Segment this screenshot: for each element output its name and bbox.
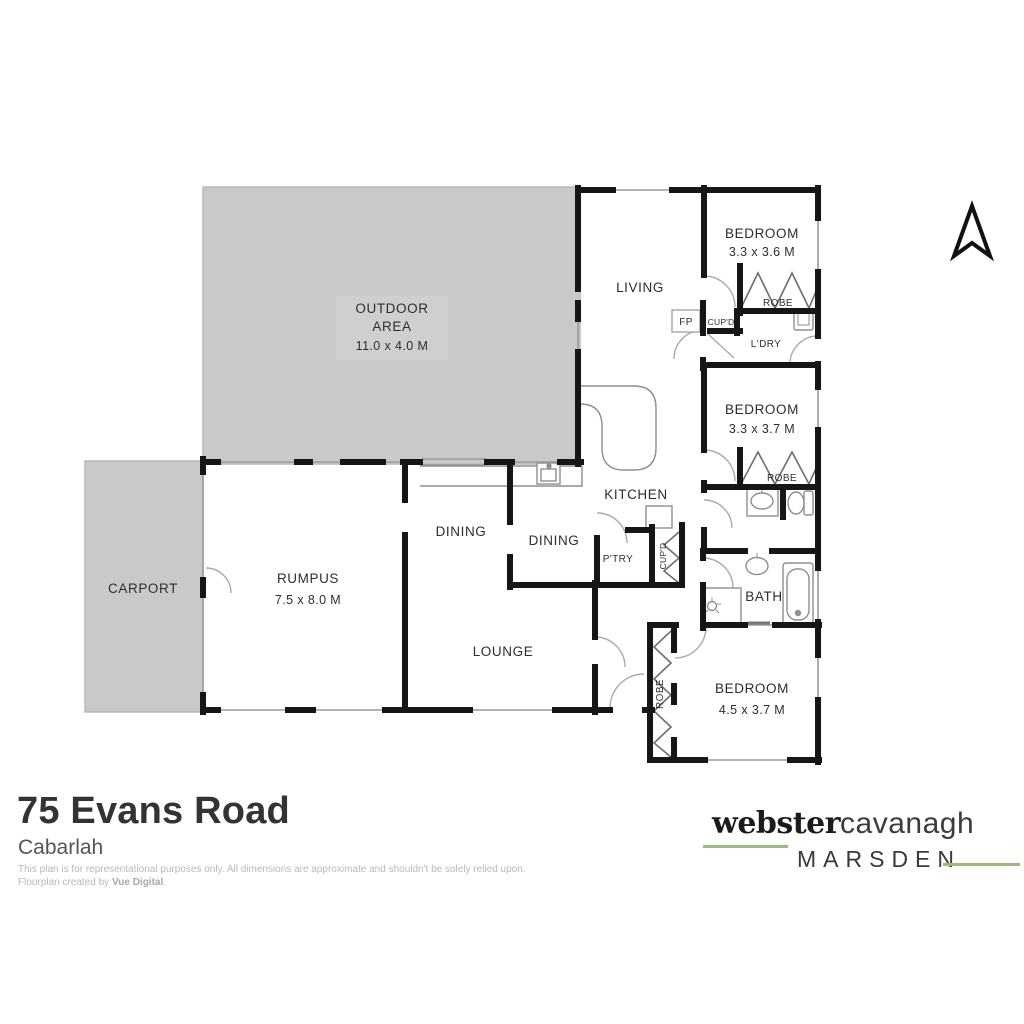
disclaimer-text: This plan is for representational purpos… (18, 863, 526, 889)
bathtub-icon (783, 563, 813, 626)
page-title: 75 Evans Road (17, 790, 290, 833)
label-pantry: P'TRY (603, 554, 633, 565)
brand-name-secondary: cavanagh (840, 807, 974, 840)
label-robe-2: ROBE (767, 473, 797, 484)
shower-icon (703, 588, 741, 627)
label-fireplace: FP (679, 317, 693, 328)
label-laundry: L'DRY (751, 339, 781, 350)
disclaimer-line1: This plan is for representational purpos… (18, 864, 526, 875)
dims-bedroom-3: 4.5 x 3.7 M (719, 703, 785, 717)
label-dining-1: DINING (436, 524, 487, 539)
label-robe-1: ROBE (763, 298, 793, 309)
bath-basin-icon (746, 553, 768, 575)
floorplan-page: OUTDOOR AREA 11.0 x 4.0 M CARPORT RUMPUS… (0, 0, 1024, 1024)
label-living: LIVING (616, 280, 664, 295)
brand-name-tertiary: MARSDEN (797, 846, 961, 873)
label-bath: BATH (745, 589, 782, 604)
label-rumpus: RUMPUS (277, 571, 339, 586)
disclaimer-line2-prefix: Floorplan created by (18, 877, 112, 888)
dims-outdoor: 11.0 x 4.0 M (356, 339, 429, 353)
label-cupboard-2: CUP'D (658, 543, 668, 570)
label-bedroom-3: BEDROOM (715, 681, 789, 696)
dims-bedroom-1: 3.3 x 3.6 M (729, 245, 795, 259)
dims-bedroom-2: 3.3 x 3.7 M (729, 422, 795, 436)
label-outdoor-line1: OUTDOOR (355, 301, 428, 316)
suburb-subtitle: Cabarlah (18, 836, 103, 860)
north-arrow-icon (954, 206, 990, 256)
label-carport: CARPORT (108, 581, 178, 596)
wc-basin-icon (747, 489, 778, 516)
label-outdoor-line2: AREA (372, 319, 411, 334)
label-cupboard-1: CUP'D (708, 317, 735, 327)
brand-rule-left (703, 845, 788, 848)
label-kitchen: KITCHEN (604, 487, 667, 502)
brand-rule-right (943, 863, 1020, 866)
dims-rumpus: 7.5 x 8.0 M (275, 593, 341, 607)
label-bedroom-1: BEDROOM (725, 226, 799, 241)
label-lounge: LOUNGE (473, 644, 534, 659)
label-dining-2: DINING (529, 533, 580, 548)
kitchen-sink-icon (537, 463, 560, 484)
label-bedroom-2: BEDROOM (725, 402, 799, 417)
label-robe-3: ROBE (655, 679, 666, 709)
disclaimer-creator: Vue Digital (112, 877, 163, 888)
kitchen-counter (580, 386, 656, 470)
brand-logo: webstercavanagh (712, 806, 974, 841)
toilet-icon (788, 491, 813, 515)
brand-name-primary: webster (712, 806, 840, 841)
disclaimer-line2-suffix: . (163, 877, 166, 888)
